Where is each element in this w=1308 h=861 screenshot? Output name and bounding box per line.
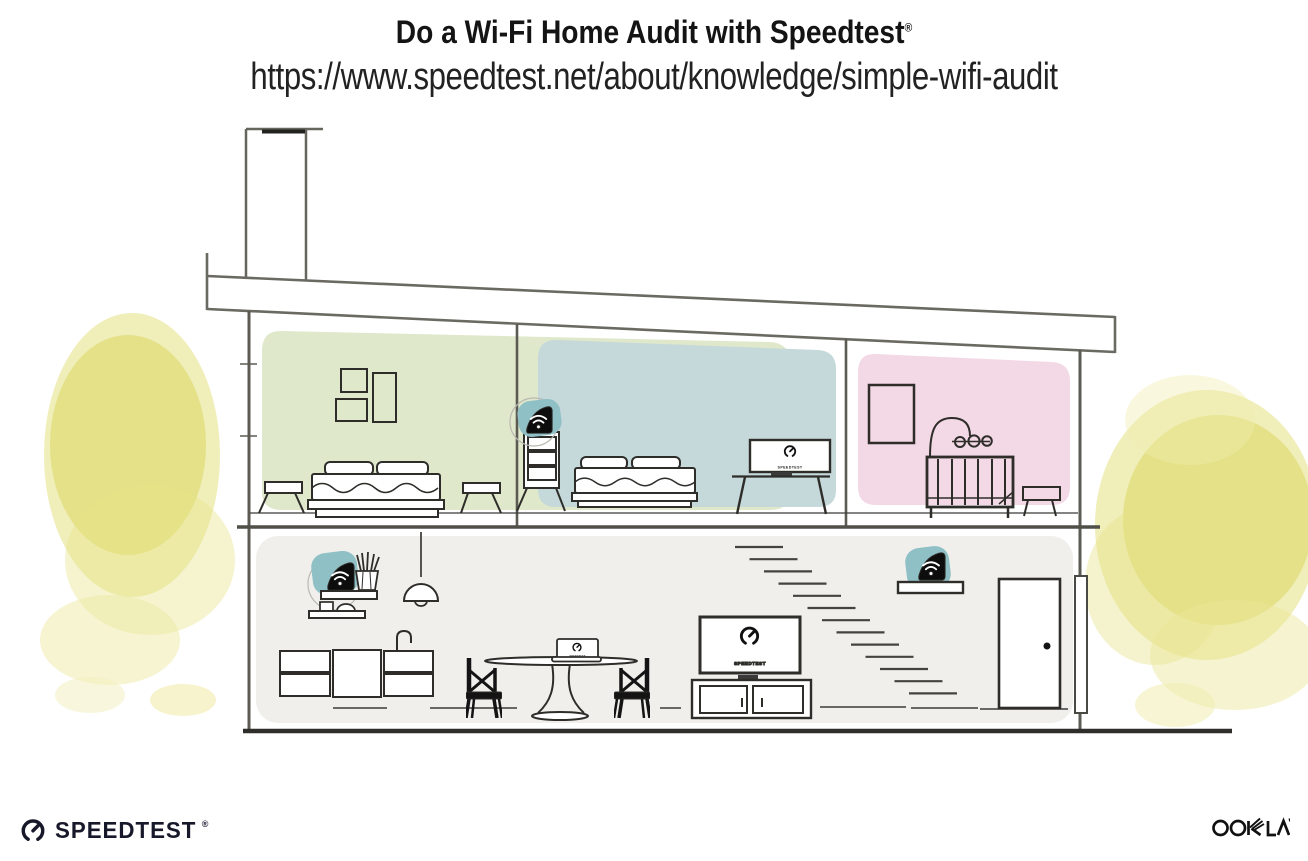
speedtest-logo: SPEEDTEST ® <box>18 815 207 845</box>
speedtest-wordmark: SPEEDTEST <box>55 817 196 844</box>
page-url: https://www.speedtest.net/about/knowledg… <box>118 56 1191 99</box>
watercolor-tree-left <box>40 313 235 716</box>
speedtest-registered-mark: ® <box>202 819 209 829</box>
media-console <box>692 680 811 718</box>
ookla-logo <box>1212 813 1290 841</box>
laptop: SPEEDTEST <box>552 639 601 662</box>
living-area: SPEEDTEST <box>692 617 811 718</box>
header: Do a Wi-Fi Home Audit with Speedtest® ht… <box>0 0 1308 99</box>
door-side-trim <box>1075 576 1087 713</box>
bed-blue <box>572 457 697 507</box>
door-knob <box>1044 643 1051 650</box>
monitor-screen-label: SPEEDTEST <box>778 466 803 470</box>
entry-shelf <box>898 582 963 593</box>
front-door <box>999 579 1060 708</box>
registered-mark: ® <box>904 20 912 34</box>
watercolor-tree-right <box>1085 375 1308 727</box>
infographic-canvas: Do a Wi-Fi Home Audit with Speedtest® ht… <box>0 0 1308 861</box>
page-title-text: Do a Wi-Fi Home Audit with Speedtest <box>396 14 905 50</box>
tv: SPEEDTEST <box>700 617 800 679</box>
house-illustration: SPEEDTEST <box>0 0 1308 861</box>
page-title: Do a Wi-Fi Home Audit with Speedtest® <box>78 14 1229 51</box>
tv-screen-label: SPEEDTEST <box>734 661 766 666</box>
speedtest-gauge-icon <box>18 815 48 845</box>
wall-shelf-upper <box>321 591 377 599</box>
chimney <box>246 129 323 281</box>
